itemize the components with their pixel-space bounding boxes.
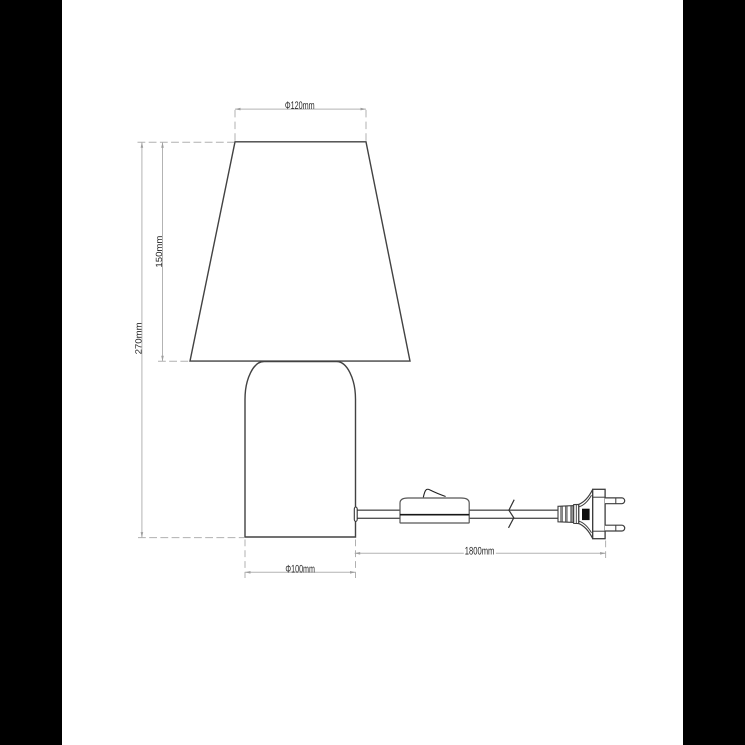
svg-text:270mm: 270mm [134,322,144,354]
svg-text:Φ100mm: Φ100mm [285,564,315,576]
svg-text:Φ120mm: Φ120mm [285,100,315,112]
svg-text:1800mm: 1800mm [465,545,495,557]
svg-text:150mm: 150mm [154,236,164,268]
